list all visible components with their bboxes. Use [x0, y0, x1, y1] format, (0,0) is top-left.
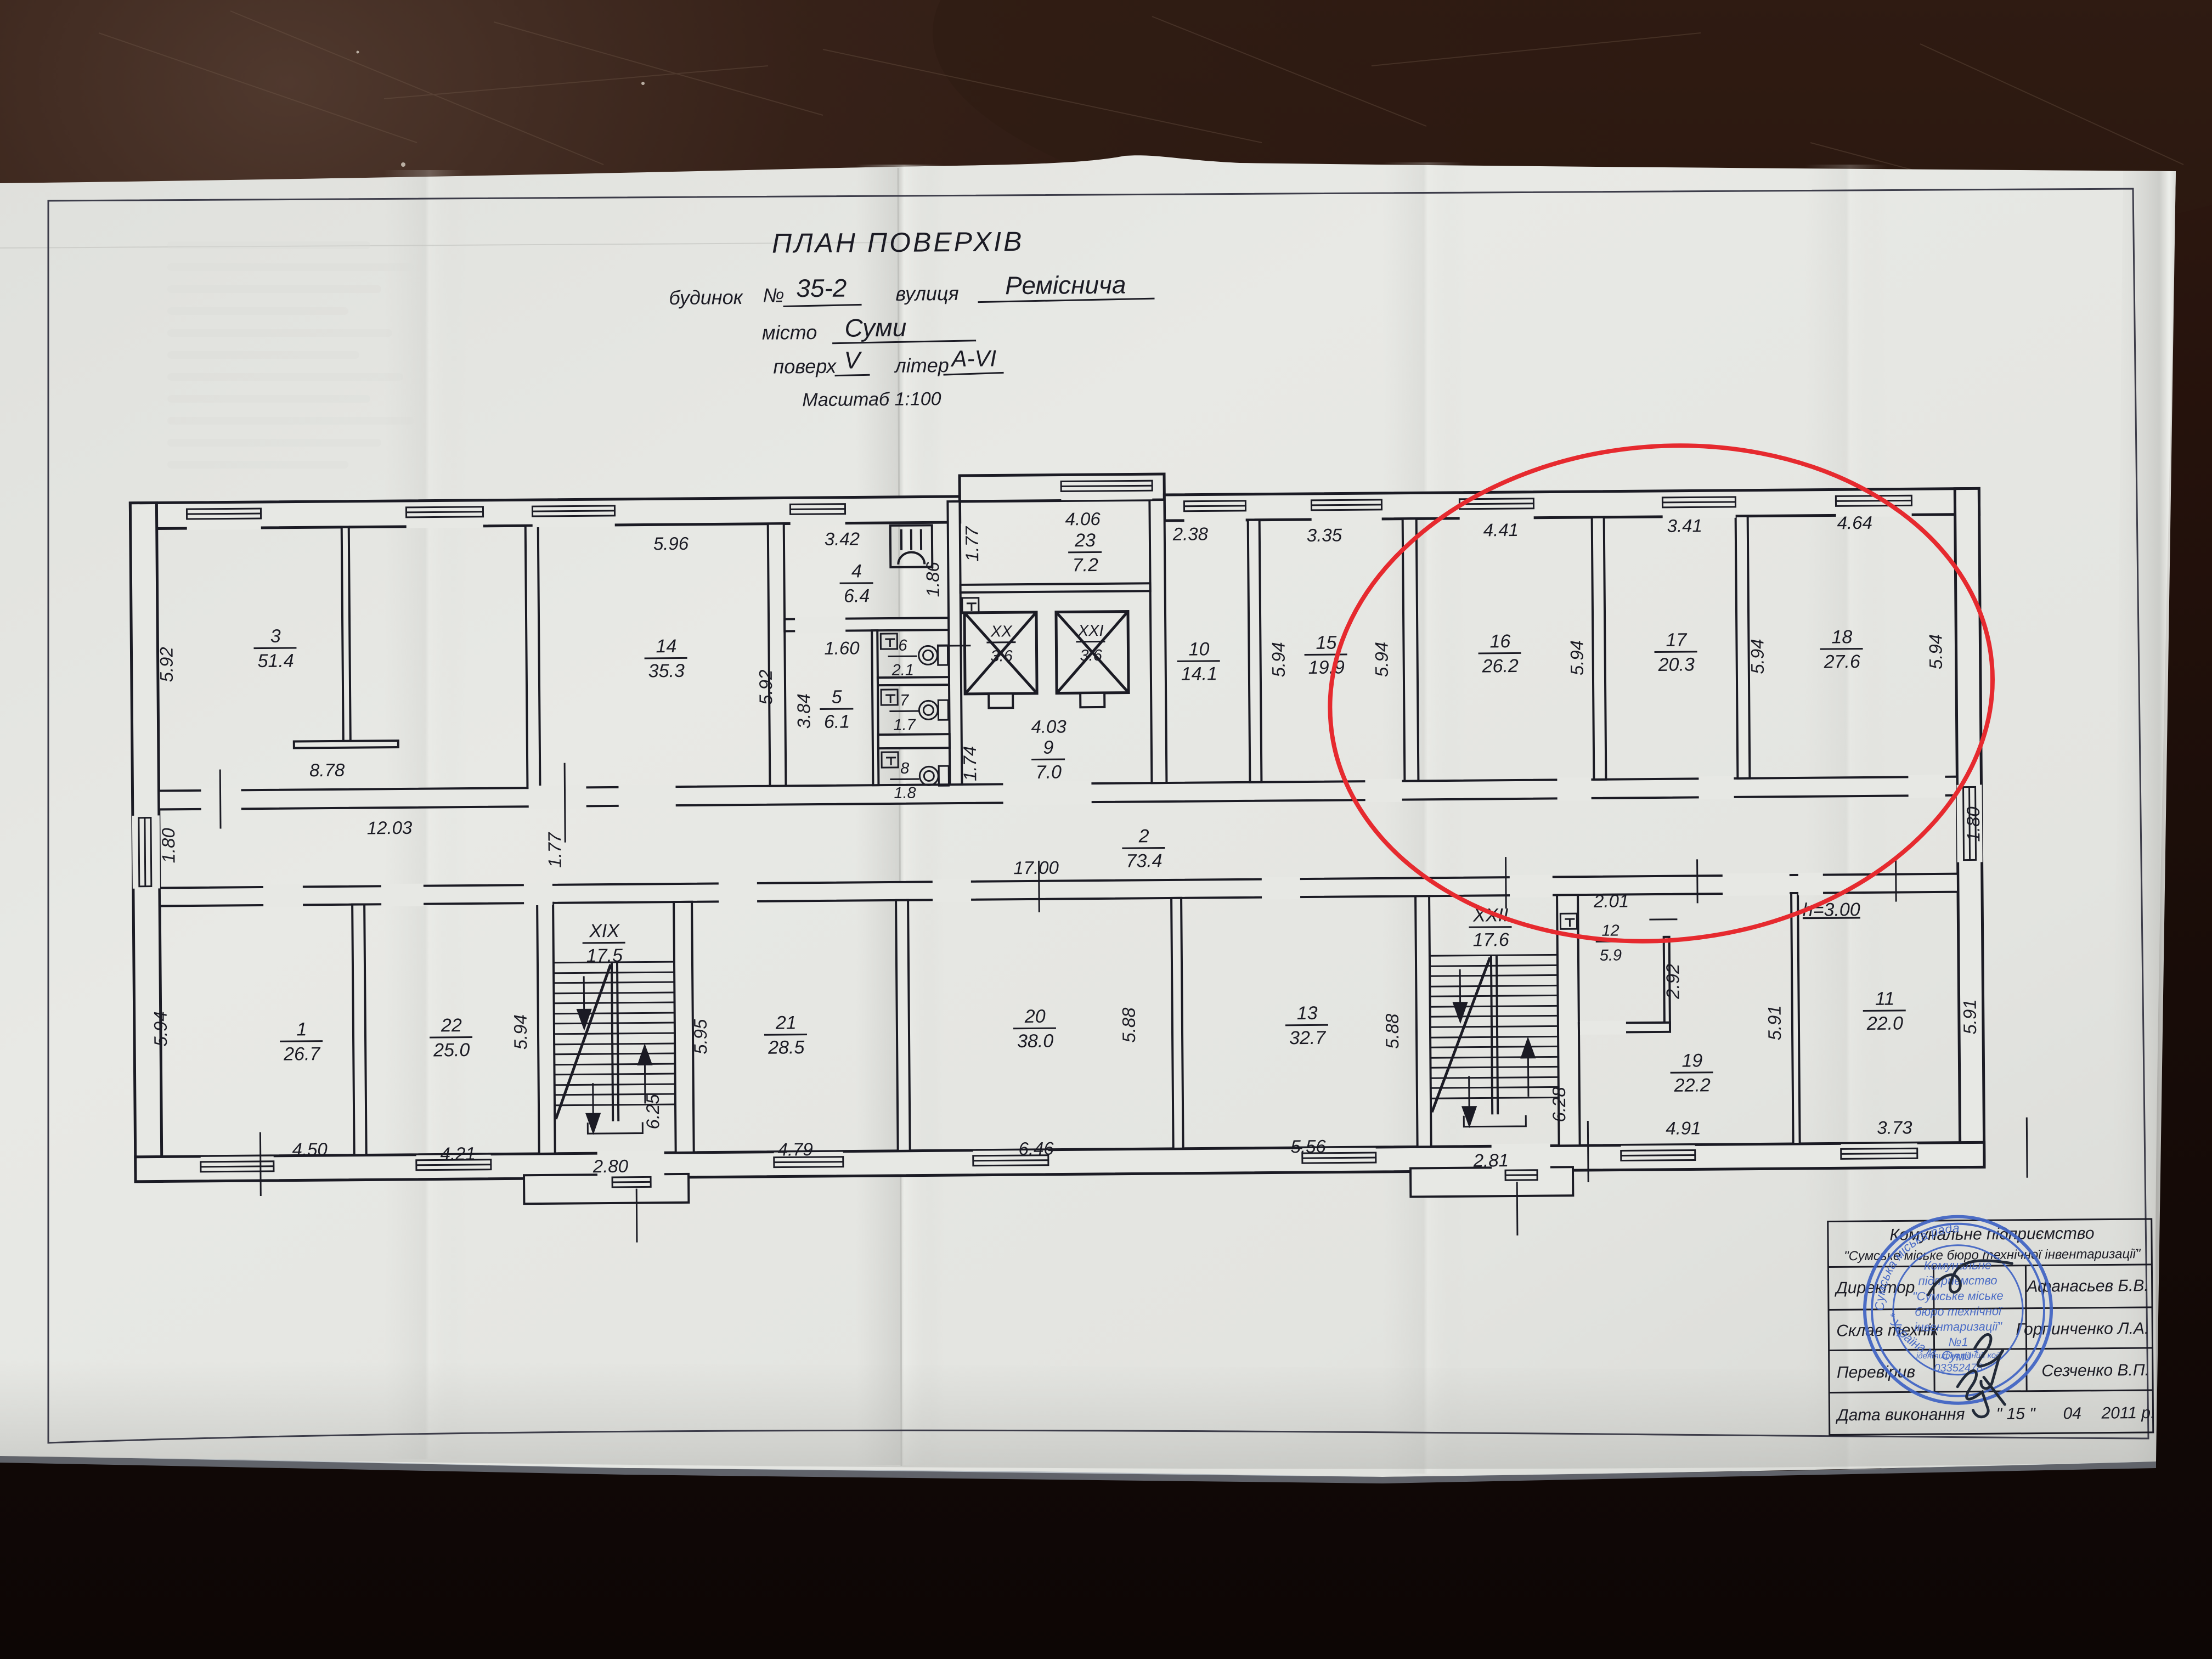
svg-text:" 15 ": " 15 "	[1996, 1405, 2036, 1424]
svg-text:вулиця: вулиця	[895, 282, 959, 305]
svg-text:7.0: 7.0	[1035, 762, 1062, 783]
svg-text:5.91: 5.91	[1764, 1005, 1785, 1041]
svg-text:Афанасьев Б.В.: Афанасьев Б.В.	[2025, 1277, 2149, 1296]
svg-text:25.0: 25.0	[433, 1040, 470, 1061]
svg-text:16: 16	[1489, 631, 1510, 652]
svg-text:4.06: 4.06	[1065, 509, 1101, 529]
svg-text:6: 6	[898, 637, 907, 654]
svg-text:5.94: 5.94	[510, 1014, 531, 1050]
svg-text:32.7: 32.7	[1289, 1028, 1327, 1049]
svg-text:1.8: 1.8	[894, 785, 916, 802]
svg-text:5.94: 5.94	[1747, 639, 1768, 674]
svg-text:1.80: 1.80	[158, 827, 179, 863]
svg-text:А-VI: А-VI	[950, 345, 996, 371]
svg-text:3: 3	[270, 626, 281, 647]
svg-text:14: 14	[656, 636, 676, 657]
svg-text:5: 5	[832, 687, 842, 708]
svg-text:місто: місто	[762, 321, 817, 344]
svg-text:5.94: 5.94	[1925, 634, 1946, 670]
svg-text:ПЛАН ПОВЕРХІВ: ПЛАН ПОВЕРХІВ	[772, 226, 1024, 259]
svg-text:3.6: 3.6	[990, 647, 1013, 665]
svg-text:5.9: 5.9	[1600, 946, 1622, 964]
svg-text:6.46: 6.46	[1018, 1138, 1054, 1159]
svg-text:3.84: 3.84	[793, 693, 814, 729]
svg-text:5.94: 5.94	[150, 1011, 171, 1047]
svg-text:5.94: 5.94	[1371, 642, 1392, 678]
svg-text:Перевірив: Перевірив	[1837, 1363, 1915, 1381]
svg-text:будинок: будинок	[669, 286, 744, 309]
svg-text:51.4: 51.4	[257, 650, 294, 672]
svg-text:5.88: 5.88	[1119, 1007, 1139, 1043]
svg-text:ідентифікаційний код: ідентифікаційний код	[1916, 1351, 2001, 1361]
svg-text:2.80: 2.80	[592, 1156, 629, 1177]
svg-text:Дата виконання: Дата виконання	[1835, 1406, 1965, 1425]
svg-text:1.77: 1.77	[962, 526, 983, 562]
svg-text:6.28: 6.28	[1549, 1087, 1570, 1122]
svg-text:10: 10	[1188, 639, 1209, 659]
svg-text:20: 20	[1024, 1006, 1046, 1027]
svg-text:3.73: 3.73	[1877, 1117, 1912, 1138]
svg-text:2.38: 2.38	[1172, 523, 1209, 544]
svg-text:17.6: 17.6	[1472, 929, 1509, 951]
svg-text:5.94: 5.94	[1566, 640, 1587, 676]
svg-text:35.3: 35.3	[648, 661, 685, 682]
svg-text:2011 р.: 2011 р.	[2101, 1404, 2155, 1423]
svg-text:15: 15	[1316, 633, 1336, 653]
svg-text:2.92: 2.92	[1662, 964, 1683, 1000]
svg-text:XIX: XIX	[589, 921, 620, 941]
svg-text:бюро технічної: бюро технічної	[1915, 1304, 2003, 1318]
svg-text:28.5: 28.5	[768, 1037, 805, 1058]
svg-text:12: 12	[1601, 922, 1620, 940]
svg-text:26.7: 26.7	[283, 1043, 321, 1065]
svg-text:3.42: 3.42	[825, 528, 860, 549]
svg-text:22: 22	[441, 1015, 462, 1036]
svg-text:5.95: 5.95	[690, 1019, 711, 1054]
svg-text:XX: XX	[990, 623, 1013, 640]
svg-text:Масштаб 1:100: Масштаб 1:100	[802, 388, 941, 410]
svg-text:№: №	[763, 284, 784, 306]
svg-text:6.1: 6.1	[824, 712, 850, 732]
svg-text:8.78: 8.78	[309, 760, 345, 781]
svg-text:20.3: 20.3	[1658, 654, 1695, 675]
svg-text:5.56: 5.56	[1290, 1136, 1326, 1157]
svg-text:3.35: 3.35	[1307, 524, 1342, 545]
svg-text:7.2: 7.2	[1073, 555, 1099, 575]
svg-text:V: V	[844, 347, 862, 374]
svg-text:5.92: 5.92	[755, 669, 776, 705]
svg-text:2: 2	[1138, 826, 1149, 847]
svg-text:73.4: 73.4	[1126, 850, 1162, 872]
svg-text:підприємство: підприємство	[1918, 1273, 1997, 1288]
svg-text:12.03: 12.03	[367, 817, 413, 838]
svg-text:XXI: XXI	[1077, 622, 1104, 640]
svg-text:38.0: 38.0	[1017, 1031, 1054, 1052]
svg-text:4.21: 4.21	[440, 1143, 476, 1164]
svg-text:17.5: 17.5	[586, 945, 623, 967]
svg-text:22.2: 22.2	[1674, 1075, 1711, 1096]
svg-text:26.2: 26.2	[1482, 656, 1519, 677]
svg-text:2.1: 2.1	[891, 662, 915, 679]
svg-text:3.6: 3.6	[1080, 647, 1102, 664]
svg-text:19.9: 19.9	[1308, 657, 1345, 678]
svg-text:04: 04	[2063, 1404, 2081, 1423]
svg-text:№1: №1	[1948, 1335, 1968, 1349]
svg-text:1.86: 1.86	[922, 561, 943, 597]
svg-text:1.80: 1.80	[1963, 806, 1984, 842]
svg-text:6.4: 6.4	[844, 585, 870, 606]
svg-text:27.6: 27.6	[1823, 651, 1860, 673]
svg-text:5.94: 5.94	[1268, 642, 1289, 678]
svg-text:4.41: 4.41	[1483, 520, 1519, 540]
svg-text:1.74: 1.74	[960, 746, 980, 782]
svg-text:35-2: 35-2	[796, 274, 847, 303]
svg-text:18: 18	[1831, 627, 1852, 647]
svg-text:Горпинченко Л.А.: Горпинченко Л.А.	[2016, 1319, 2149, 1339]
svg-text:3.41: 3.41	[1667, 515, 1703, 536]
svg-text:19: 19	[1681, 1050, 1702, 1071]
svg-text:4: 4	[851, 561, 862, 582]
svg-text:1.77: 1.77	[544, 832, 565, 868]
svg-text:17: 17	[1666, 630, 1687, 651]
svg-text:Суми: Суми	[844, 313, 906, 342]
svg-text:4.50: 4.50	[292, 1139, 328, 1160]
svg-text:4.64: 4.64	[1837, 512, 1872, 533]
svg-text:17.00: 17.00	[1013, 857, 1059, 878]
svg-text:1.60: 1.60	[824, 637, 860, 658]
svg-text:2.81: 2.81	[1473, 1150, 1509, 1171]
svg-text:13: 13	[1297, 1003, 1318, 1024]
svg-text:11: 11	[1875, 989, 1895, 1009]
svg-text:8: 8	[900, 760, 909, 777]
svg-text:1: 1	[296, 1019, 307, 1040]
svg-text:1.7: 1.7	[893, 716, 916, 734]
svg-text:22.0: 22.0	[1866, 1013, 1904, 1034]
svg-text:5.91: 5.91	[1960, 999, 1980, 1035]
svg-text:14.1: 14.1	[1181, 663, 1217, 685]
svg-text:поверх: поверх	[773, 355, 837, 378]
svg-text:2.01: 2.01	[1593, 890, 1629, 911]
svg-text:літер: літер	[894, 354, 949, 377]
svg-text:Реміснича: Реміснича	[1005, 270, 1126, 300]
svg-text:4.79: 4.79	[777, 1139, 813, 1160]
svg-text:9: 9	[1043, 737, 1053, 758]
svg-text:4.91: 4.91	[1666, 1118, 1701, 1138]
svg-text:4.03: 4.03	[1031, 716, 1066, 737]
svg-text:5.96: 5.96	[653, 533, 689, 554]
svg-text:21: 21	[775, 1012, 797, 1033]
svg-text:5.88: 5.88	[1382, 1013, 1403, 1049]
svg-text:23: 23	[1074, 530, 1096, 551]
svg-text:6.25: 6.25	[642, 1093, 663, 1129]
svg-text:Сезченко В.П.: Сезченко В.П.	[2041, 1361, 2149, 1380]
svg-text:5.92: 5.92	[156, 647, 177, 682]
svg-text:7: 7	[900, 692, 910, 709]
svg-text:інвентаризації": інвентаризації"	[1914, 1319, 2002, 1334]
